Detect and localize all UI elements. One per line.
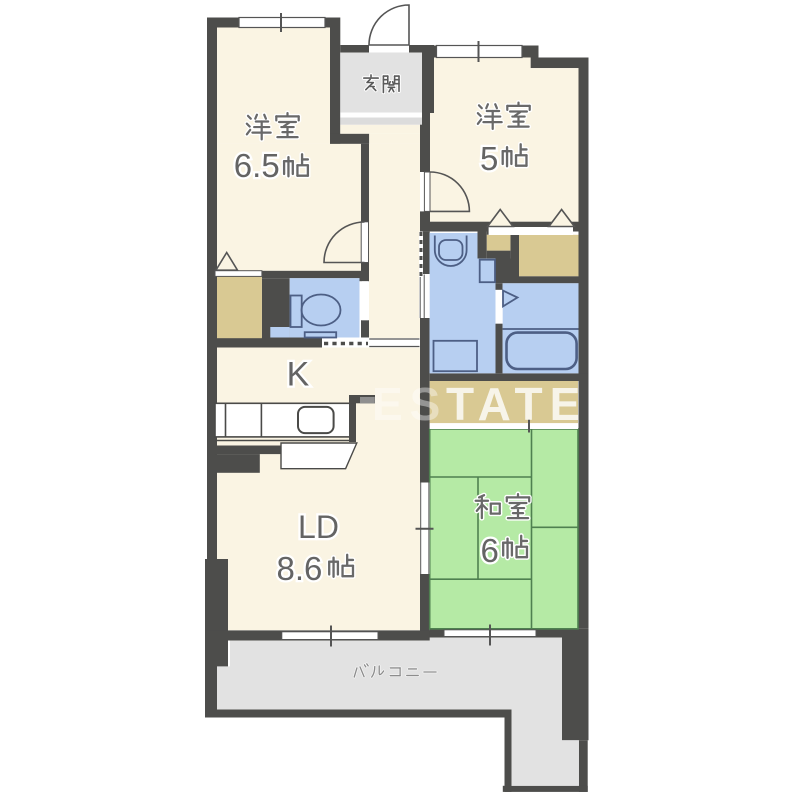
svg-text:8.6: 8.6 xyxy=(277,550,323,587)
svg-text:6.5: 6.5 xyxy=(234,147,280,184)
svg-text:5: 5 xyxy=(480,140,498,177)
svg-text:ES: ES xyxy=(372,378,447,430)
svg-text:TATE: TATE xyxy=(446,378,587,430)
svg-text:LD: LD xyxy=(298,509,339,545)
svg-text:K: K xyxy=(287,356,310,394)
svg-text:6: 6 xyxy=(481,532,499,569)
